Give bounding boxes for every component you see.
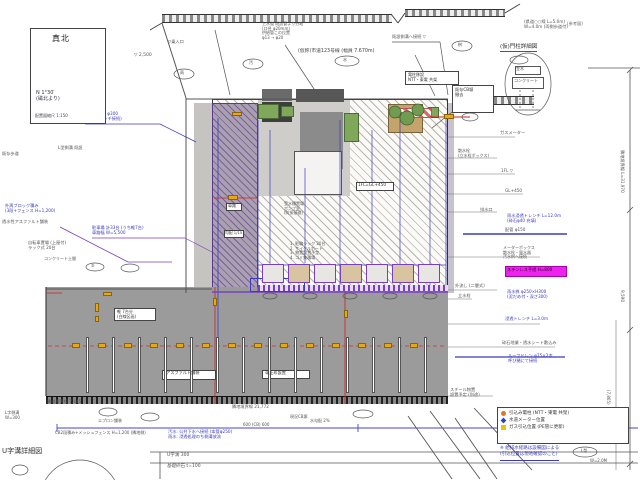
legend-row: ガス引込位置 (PE管に更新) [501,424,625,430]
scale-note: 配置図縮尺 1:150 [35,113,68,119]
annotation-text: ▽乗入口 [168,40,184,45]
annotation-text: 車止め設置 [265,371,286,376]
annotation-text: 水勾配 2% [310,419,330,424]
annotation-text: 透水性アスファルト舗装 [2,220,48,225]
legend-box: 引込み電柱 (NTT・東電 共架)水道メーター位置ガス引込位置 (PE管に更新) [497,407,629,444]
annotation-text: 車路 [228,204,236,209]
annotation-text: 上水道 既設管より分岐 (口径 φ20mm) 供給管この位置 φ13 → φ20 [262,22,303,41]
annotation-text: ガスメーター [500,131,525,136]
annotation-text: 駐車場 計33台 (うち軽7台) 車路幅 W=5,500 [92,226,144,236]
legend-circle-icon [501,411,506,416]
legend-label: 引込み電柱 (NTT・東電 共架) [509,410,569,416]
annotation-text: ▽ 2,500 [134,53,152,58]
annotation-text: L字側溝 W=300 [5,411,20,420]
bubble-label: 汚 [249,61,253,66]
annotation-text: (仮称)市道123号線 (幅員 7.670m) [298,49,374,55]
legend-row: 引込み電柱 (NTT・東電 共架) [501,410,625,416]
legend-label: 水道メーター位置 [509,417,545,423]
annotation-text: 受水槽置場 ポンプ室 (防振基礎) [284,202,304,216]
annotation-text: 1FL=GL+450 [358,183,386,188]
annotation-text: 9,590 [619,290,624,302]
annotation-text: メーターボックス 散水栓・量水器 汚水桝へ接続 [503,246,535,260]
handrail-highlight-label: ステンレス手摺 H=800 [507,268,552,273]
bubble-label: 桝 [458,43,462,48]
annotation-text: CB2段積み+メッシュフェンス H=1,200 (隣地側) [55,431,146,436]
annotation-text: コンクリート [514,79,538,84]
legend-label: ガス引込位置 (PE管に更新) [509,424,565,430]
annotation-text: 勾配 1/15 [225,231,242,235]
annotation-text: 砕石地業・透水シート敷込み [502,341,556,346]
annotation-text: コンクリート土間 [44,257,76,262]
annotation-text: 軽 7台分 (白線区画) [117,310,136,319]
annotation-text: 浸透トレンチ L=3.0m [505,317,548,322]
annotation-text: 1FL ▽ [501,169,513,174]
annotation-text: アスファルト舗装 [166,371,200,376]
annotation-text: 電柱移設 NTT・東電 共架 [408,73,437,82]
annotation-text: エプロン舗装 [98,419,122,424]
annotation-text: 隣地境界線 7,445 [47,400,81,405]
legend-square-icon [501,425,506,430]
annotation-text: 外周ブロック積み (3段+フェンス H=1,200) [5,204,55,214]
annotation-text: 現況CB塀 [290,415,308,420]
legend-diamond-icon [501,417,507,423]
annotation-text: 雨水浸透トレンチ L=12.0m (砕石φ40 充填) [507,214,561,224]
annotation-text: 600 (CB) 600 [243,423,269,428]
gutter-detail-title: U字溝詳細図 [2,446,42,456]
annotation-text: (参考図) [567,22,583,27]
legend-rows: 引込み電柱 (NTT・東電 共架)水道メーター位置ガス引込位置 (PE管に更新) [499,410,627,430]
annotation-text: 既存歩道 [2,152,19,157]
annotation-text: 散水栓 (立水栓ボックス) [458,149,489,158]
annotation-text: 隣地境界線 21,772 [232,405,269,410]
annotation-text: (7,865) [605,390,610,405]
annotation-text: 立水栓 [458,294,471,299]
site-plan-drawing: 雨汚水桝⑤L型▽ 2,500上水道 既設管より分岐 (口径 φ20mm) 供給管… [0,0,640,480]
legend-row: 水道メーター位置 [501,417,625,423]
annotation-text: (県道○○線 L=5.0m) W=4.0m (両側歩道付) [524,20,568,30]
annotation-text: 既設側溝へ接続 ▽ [392,35,426,40]
annotation-text: 1. 駐輪ラック 20台 2. サイクルポート 3. 物置設置予定 4. ゴミ集… [290,242,325,261]
annotation-text: 排水口 [480,208,493,213]
annotation-text: U字溝 300 [167,453,189,458]
legend-notes: ※ 給排水経路は設備図による (引込位置は現地確認のこと) [500,446,559,461]
north-title: 真北 [52,33,70,44]
annotation-text: GL+450 [505,189,522,194]
annotation-text: 隣地境界線 L=31,970 [619,150,624,193]
bubble-label: 水 [343,58,347,63]
annotation-text: W=2.0M [590,459,607,464]
annotation-text: 自転車置場 (上屋付) ラック式 20台 [28,241,66,251]
annotation-text: 基礎砕石 t=100 [167,464,201,469]
annotation-text: 笠木 [516,67,524,72]
annotation-text: 既存CB塀 撤去 [455,88,473,98]
bubble-label: ⑤ [91,264,95,269]
annotation-text: L型側溝 既設 [58,146,83,151]
annotation-text: 汚水: 公共下水へ接続 (本管φ250) 雨水: 浸透処理のち側溝放流 [168,430,232,440]
bubble-label: 雨 [180,71,184,76]
bubble-label: L型 [581,449,587,454]
annotation-text: 雨水桝 φ250×H300 (泥だめ付・深さ300) [507,290,548,300]
annotation-text: ルーフドレン φ75×2本 呼び樋にて接続 [508,354,553,364]
annotation-text: 配管 φ150 [505,228,525,233]
annotation-text: 外流し (二層式) [455,284,485,289]
north-angle-note: N 1°30′ (磁北より) [36,90,60,102]
annotation-text: スチール物置 設置予定 (別途) [450,388,480,398]
gatepost-detail-title: (仮)門柱詳細図 [500,42,537,52]
